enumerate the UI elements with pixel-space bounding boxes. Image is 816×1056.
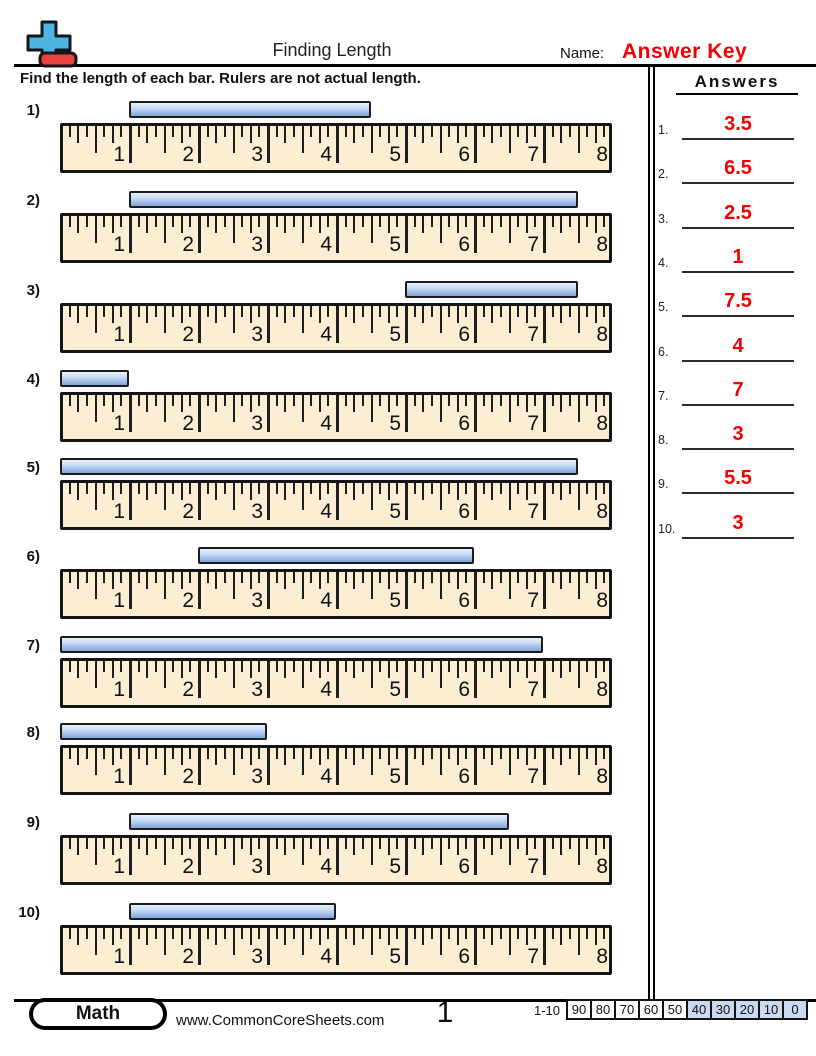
ruler-tick — [224, 395, 226, 406]
problem-number: 6) — [8, 548, 40, 565]
ruler-tick — [172, 928, 174, 939]
ruler-tick — [491, 838, 493, 855]
problem-number: 9) — [8, 814, 40, 831]
ruler-tick — [534, 483, 536, 494]
ruler-tick — [457, 928, 459, 945]
ruler-tick — [241, 395, 243, 406]
ruler-tick — [146, 126, 148, 143]
ruler-tick — [379, 838, 381, 849]
ruler-tick — [379, 306, 381, 317]
problem-number: 3) — [8, 282, 40, 299]
ruler-tick — [560, 928, 562, 945]
ruler-tick — [155, 395, 157, 406]
ruler-tick — [517, 126, 519, 137]
ruler-tick — [86, 748, 88, 759]
ruler-tick — [396, 928, 398, 939]
ruler-tick — [198, 928, 201, 965]
ruler-tick — [345, 306, 347, 317]
answer-item-number: 6. — [658, 345, 668, 359]
ruler-tick — [241, 216, 243, 227]
ruler-tick — [77, 928, 79, 945]
ruler: 12345678 — [60, 745, 612, 795]
ruler-tick — [207, 661, 209, 672]
ruler-tick — [362, 126, 364, 137]
ruler-tick — [396, 395, 398, 406]
ruler-tick — [276, 216, 278, 227]
ruler-number: 5 — [371, 323, 401, 347]
ruler-tick — [336, 306, 339, 343]
ruler-tick — [353, 126, 355, 143]
ruler-tick — [517, 216, 519, 227]
ruler-tick — [543, 661, 546, 698]
ruler-tick — [474, 395, 477, 432]
ruler-tick — [224, 483, 226, 494]
ruler-tick — [146, 306, 148, 323]
ruler-tick — [146, 216, 148, 233]
ruler-tick — [465, 928, 467, 939]
ruler-tick — [491, 572, 493, 589]
ruler-tick — [483, 306, 485, 317]
ruler-tick — [603, 483, 605, 494]
ruler-tick — [560, 126, 562, 143]
ruler-tick — [112, 572, 114, 589]
ruler-number: 3 — [233, 323, 263, 347]
problem-number: 8) — [8, 724, 40, 741]
ruler-tick — [267, 395, 270, 432]
ruler-tick — [146, 928, 148, 945]
ruler-tick — [86, 483, 88, 494]
ruler-tick — [120, 306, 122, 317]
ruler-number: 4 — [302, 765, 332, 789]
score-box: 80 — [590, 999, 616, 1020]
ruler-number: 5 — [371, 589, 401, 613]
ruler-tick — [138, 395, 140, 406]
ruler-tick — [224, 928, 226, 939]
ruler-tick — [353, 306, 355, 323]
ruler-tick — [534, 126, 536, 137]
ruler-number: 5 — [371, 855, 401, 879]
ruler-tick — [603, 748, 605, 759]
ruler-tick — [327, 126, 329, 137]
ruler-tick — [77, 483, 79, 500]
ruler-tick — [138, 748, 140, 759]
ruler-tick — [336, 838, 339, 875]
score-table: 9080706050403020100 — [566, 999, 808, 1020]
ruler-tick — [310, 572, 312, 583]
ruler-tick — [569, 483, 571, 494]
ruler-tick — [362, 661, 364, 672]
ruler-tick — [155, 572, 157, 583]
ruler-tick — [362, 928, 364, 939]
ruler-tick — [207, 216, 209, 227]
ruler-tick — [500, 748, 502, 759]
ruler-tick — [138, 483, 140, 494]
ruler-tick — [560, 216, 562, 233]
ruler-tick — [310, 661, 312, 672]
ruler-tick — [560, 306, 562, 323]
ruler-tick — [586, 126, 588, 137]
ruler-tick — [310, 838, 312, 849]
answer-value: 2.5 — [682, 202, 794, 225]
ruler-tick — [146, 572, 148, 589]
ruler-tick — [86, 661, 88, 672]
ruler-tick — [414, 661, 416, 672]
ruler-tick — [276, 306, 278, 317]
page-title: Finding Length — [182, 40, 482, 61]
ruler-tick — [353, 661, 355, 678]
ruler-tick — [396, 661, 398, 672]
ruler-tick — [543, 572, 546, 609]
ruler-number: 6 — [440, 945, 470, 969]
length-bar — [129, 191, 578, 208]
ruler-tick — [353, 572, 355, 589]
length-bar — [60, 458, 578, 475]
ruler-number: 3 — [233, 589, 263, 613]
ruler-tick — [207, 306, 209, 317]
ruler-number: 7 — [509, 589, 539, 613]
ruler-tick — [198, 126, 201, 163]
ruler-tick — [129, 661, 132, 698]
ruler-tick — [517, 572, 519, 583]
ruler-tick — [250, 395, 252, 412]
ruler-tick — [534, 838, 536, 849]
ruler-number: 8 — [578, 678, 608, 702]
ruler-tick — [448, 216, 450, 227]
ruler-tick — [586, 395, 588, 406]
ruler-tick — [77, 395, 79, 412]
ruler-number: 6 — [440, 589, 470, 613]
ruler-number: 5 — [371, 412, 401, 436]
ruler-tick — [310, 483, 312, 494]
ruler-tick — [345, 126, 347, 137]
ruler-tick — [552, 306, 554, 317]
answer-item-number: 3. — [658, 212, 668, 226]
ruler-tick — [595, 838, 597, 855]
ruler-number: 3 — [233, 678, 263, 702]
ruler-tick — [483, 748, 485, 759]
ruler-tick — [543, 928, 546, 965]
ruler-tick — [181, 748, 183, 765]
ruler-tick — [431, 216, 433, 227]
ruler-tick — [276, 572, 278, 583]
ruler-tick — [181, 216, 183, 233]
ruler-tick — [310, 748, 312, 759]
ruler-tick — [155, 928, 157, 939]
ruler-tick — [69, 838, 71, 849]
ruler-tick — [146, 661, 148, 678]
ruler-number: 6 — [440, 323, 470, 347]
ruler-tick — [258, 748, 260, 759]
ruler-number: 5 — [371, 143, 401, 167]
ruler-tick — [284, 395, 286, 412]
ruler-tick — [422, 661, 424, 678]
ruler-tick — [457, 661, 459, 678]
ruler-tick — [396, 306, 398, 317]
ruler-tick — [112, 126, 114, 143]
ruler-tick — [207, 395, 209, 406]
ruler-tick — [250, 126, 252, 143]
ruler-tick — [517, 838, 519, 849]
answer-value: 3.5 — [682, 113, 794, 136]
ruler-tick — [189, 483, 191, 494]
ruler-tick — [327, 216, 329, 227]
ruler-tick — [276, 748, 278, 759]
ruler-tick — [465, 838, 467, 849]
ruler-tick — [448, 483, 450, 494]
ruler-tick — [586, 483, 588, 494]
ruler-tick — [69, 928, 71, 939]
ruler-tick — [431, 395, 433, 406]
ruler-tick — [414, 126, 416, 137]
ruler-tick — [69, 483, 71, 494]
ruler-tick — [388, 126, 390, 143]
ruler-tick — [586, 216, 588, 227]
ruler-tick — [224, 572, 226, 583]
ruler-tick — [405, 306, 408, 343]
ruler-tick — [327, 661, 329, 672]
answer-blank-line — [682, 360, 794, 362]
page-number: 1 — [425, 996, 465, 1030]
ruler-tick — [129, 572, 132, 609]
ruler-tick — [388, 928, 390, 945]
subject-badge: Math — [29, 998, 167, 1030]
ruler-tick — [86, 928, 88, 939]
ruler-tick — [457, 126, 459, 143]
ruler-tick — [103, 306, 105, 317]
ruler-tick — [129, 483, 132, 520]
ruler-tick — [569, 216, 571, 227]
ruler-number: 7 — [509, 233, 539, 257]
ruler-tick — [491, 306, 493, 323]
ruler-tick — [293, 748, 295, 759]
plus-minus-icon — [24, 20, 80, 70]
ruler-tick — [603, 661, 605, 672]
ruler-tick — [448, 126, 450, 137]
ruler-tick — [448, 928, 450, 939]
ruler-tick — [241, 126, 243, 137]
ruler-tick — [517, 483, 519, 494]
score-box: 70 — [614, 999, 640, 1020]
ruler-tick — [172, 661, 174, 672]
ruler-tick — [517, 395, 519, 406]
ruler-tick — [224, 306, 226, 317]
ruler-tick — [569, 306, 571, 317]
ruler-tick — [138, 838, 140, 849]
ruler-tick — [362, 748, 364, 759]
ruler-number: 8 — [578, 323, 608, 347]
ruler-tick — [457, 483, 459, 500]
ruler-tick — [267, 748, 270, 785]
ruler-tick — [465, 661, 467, 672]
ruler-tick — [207, 838, 209, 849]
ruler-tick — [258, 661, 260, 672]
ruler-tick — [422, 483, 424, 500]
ruler-tick — [267, 661, 270, 698]
ruler-tick — [405, 395, 408, 432]
ruler-tick — [379, 216, 381, 227]
ruler-tick — [336, 661, 339, 698]
answer-item-number: 1. — [658, 123, 668, 137]
ruler-tick — [500, 483, 502, 494]
ruler-tick — [586, 572, 588, 583]
ruler-tick — [241, 306, 243, 317]
ruler-tick — [258, 928, 260, 939]
ruler-tick — [172, 395, 174, 406]
ruler-tick — [595, 572, 597, 589]
problem-number: 7) — [8, 637, 40, 654]
ruler-tick — [138, 928, 140, 939]
ruler-tick — [560, 748, 562, 765]
ruler-tick — [569, 661, 571, 672]
ruler-tick — [345, 838, 347, 849]
ruler-tick — [595, 126, 597, 143]
ruler-tick — [526, 572, 528, 589]
ruler-tick — [284, 572, 286, 589]
ruler-number: 7 — [509, 945, 539, 969]
ruler-tick — [198, 395, 201, 432]
ruler-tick — [422, 306, 424, 323]
ruler-tick — [69, 572, 71, 583]
ruler-tick — [457, 395, 459, 412]
ruler-tick — [112, 928, 114, 945]
problem-number: 4) — [8, 371, 40, 388]
ruler-tick — [388, 306, 390, 323]
ruler-tick — [353, 748, 355, 765]
ruler-tick — [129, 838, 132, 875]
website-link[interactable]: www.CommonCoreSheets.com — [176, 1012, 384, 1029]
ruler-tick — [595, 395, 597, 412]
ruler-tick — [353, 838, 355, 855]
ruler-tick — [241, 748, 243, 759]
ruler-tick — [189, 126, 191, 137]
ruler-tick — [414, 928, 416, 939]
ruler-number: 2 — [164, 412, 194, 436]
ruler-tick — [396, 572, 398, 583]
ruler-tick — [319, 126, 321, 143]
ruler-tick — [543, 483, 546, 520]
ruler-number: 4 — [302, 412, 332, 436]
ruler-tick — [534, 216, 536, 227]
ruler-tick — [405, 126, 408, 163]
ruler-tick — [569, 572, 571, 583]
answer-blank-line — [682, 227, 794, 229]
ruler-tick — [241, 928, 243, 939]
ruler-tick — [86, 306, 88, 317]
ruler-tick — [181, 395, 183, 412]
ruler-tick — [353, 395, 355, 412]
ruler-number: 1 — [95, 945, 125, 969]
ruler-tick — [319, 216, 321, 233]
ruler-tick — [258, 838, 260, 849]
answers-divider-line-outer — [648, 67, 650, 1000]
ruler-tick — [103, 572, 105, 583]
ruler-tick — [112, 395, 114, 412]
ruler-tick — [103, 483, 105, 494]
ruler-number: 8 — [578, 589, 608, 613]
ruler-tick — [215, 126, 217, 143]
ruler-tick — [543, 126, 546, 163]
ruler-tick — [414, 748, 416, 759]
ruler-tick — [172, 483, 174, 494]
ruler-tick — [77, 126, 79, 143]
answer-value: 7 — [682, 379, 794, 402]
ruler-tick — [293, 661, 295, 672]
ruler-number: 2 — [164, 678, 194, 702]
ruler-tick — [595, 928, 597, 945]
ruler-tick — [120, 748, 122, 759]
ruler-tick — [112, 216, 114, 233]
name-label: Name: — [560, 45, 604, 62]
ruler-tick — [491, 483, 493, 500]
ruler-tick — [353, 216, 355, 233]
ruler: 12345678 — [60, 835, 612, 885]
answer-item-number: 2. — [658, 167, 668, 181]
ruler-tick — [491, 126, 493, 143]
ruler-tick — [189, 306, 191, 317]
ruler-tick — [474, 126, 477, 163]
length-bar — [198, 547, 474, 564]
ruler-tick — [431, 126, 433, 137]
answer-value: 3 — [682, 423, 794, 446]
ruler-tick — [431, 928, 433, 939]
ruler-tick — [569, 395, 571, 406]
ruler-tick — [500, 928, 502, 939]
answer-item-number: 5. — [658, 300, 668, 314]
ruler-tick — [181, 306, 183, 323]
ruler-number: 1 — [95, 855, 125, 879]
ruler-tick — [465, 216, 467, 227]
ruler-tick — [319, 306, 321, 323]
ruler-tick — [103, 661, 105, 672]
ruler-tick — [586, 661, 588, 672]
ruler-tick — [595, 483, 597, 500]
ruler-tick — [129, 306, 132, 343]
length-bar — [129, 903, 336, 920]
ruler-tick — [345, 661, 347, 672]
ruler-tick — [267, 126, 270, 163]
ruler-tick — [396, 748, 398, 759]
ruler-tick — [215, 483, 217, 500]
ruler-tick — [258, 572, 260, 583]
ruler-tick — [198, 483, 201, 520]
ruler-tick — [422, 216, 424, 233]
ruler-tick — [586, 748, 588, 759]
ruler-number: 6 — [440, 412, 470, 436]
ruler-tick — [388, 216, 390, 233]
ruler-tick — [431, 661, 433, 672]
ruler-tick — [258, 126, 260, 137]
ruler-tick — [362, 572, 364, 583]
ruler-number: 1 — [95, 589, 125, 613]
ruler-tick — [103, 395, 105, 406]
ruler-number: 3 — [233, 143, 263, 167]
ruler-tick — [284, 928, 286, 945]
ruler-tick — [526, 306, 528, 323]
ruler-tick — [69, 306, 71, 317]
ruler-tick — [396, 216, 398, 227]
ruler-tick — [396, 483, 398, 494]
ruler-tick — [431, 838, 433, 849]
ruler-number: 5 — [371, 500, 401, 524]
ruler-number: 8 — [578, 412, 608, 436]
ruler-tick — [526, 126, 528, 143]
ruler-tick — [241, 483, 243, 494]
problem-number: 2) — [8, 192, 40, 209]
score-range-label: 1-10 — [516, 1003, 560, 1018]
ruler: 12345678 — [60, 480, 612, 530]
answer-value: 1 — [682, 246, 794, 269]
ruler-tick — [603, 395, 605, 406]
